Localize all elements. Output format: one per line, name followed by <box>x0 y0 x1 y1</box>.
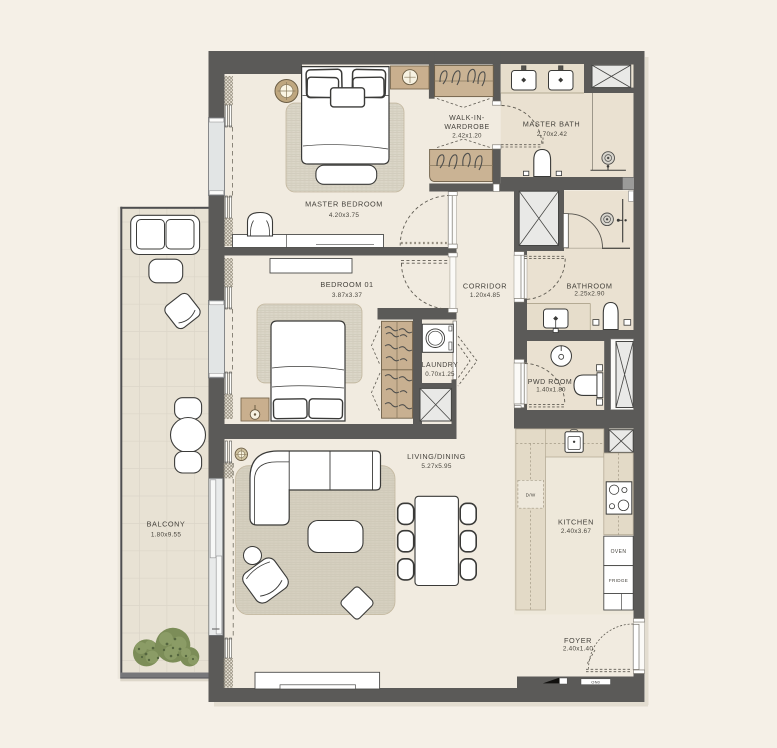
svg-text:1.40x1.80: 1.40x1.80 <box>536 387 566 394</box>
svg-text:MASTER BATH: MASTER BATH <box>523 120 580 129</box>
svg-text:WARDROBE: WARDROBE <box>444 124 489 131</box>
svg-text:D/W: D/W <box>526 493 536 498</box>
svg-text:2.40x1.40: 2.40x1.40 <box>563 646 594 653</box>
svg-text:WALK-IN-: WALK-IN- <box>449 115 485 122</box>
svg-text:BALCONY: BALCONY <box>147 520 186 529</box>
svg-text:BEDROOM 01: BEDROOM 01 <box>320 280 373 289</box>
svg-text:2.25x2.90: 2.25x2.90 <box>574 291 605 298</box>
svg-text:2.70x2.42: 2.70x2.42 <box>537 131 568 138</box>
svg-text:1.20x4.85: 1.20x4.85 <box>470 292 501 299</box>
svg-text:2.42x1.20: 2.42x1.20 <box>452 133 482 140</box>
svg-text:0.70x1.25: 0.70x1.25 <box>425 371 455 378</box>
svg-text:4.20x3.75: 4.20x3.75 <box>329 212 360 219</box>
svg-text:CORRIDOR: CORRIDOR <box>463 282 507 291</box>
svg-text:KITCHEN: KITCHEN <box>558 518 594 527</box>
svg-text:BATHROOM: BATHROOM <box>566 282 612 291</box>
svg-text:FOYER: FOYER <box>564 636 592 645</box>
svg-text:ON0: ON0 <box>591 679 600 684</box>
svg-text:LIVING/DINING: LIVING/DINING <box>407 452 466 461</box>
svg-text:3.87x3.37: 3.87x3.37 <box>332 292 363 299</box>
svg-text:FRIDGE: FRIDGE <box>609 578 628 583</box>
svg-text:1.80x9.55: 1.80x9.55 <box>151 532 182 539</box>
svg-text:OVEN: OVEN <box>611 549 627 555</box>
svg-text:MASTER BEDROOM: MASTER BEDROOM <box>305 200 383 209</box>
svg-text:LAUNDRY: LAUNDRY <box>422 362 459 369</box>
svg-text:PWD ROOM: PWD ROOM <box>528 379 572 386</box>
svg-text:5.27x5.95: 5.27x5.95 <box>421 463 452 470</box>
svg-text:2.40x3.67: 2.40x3.67 <box>561 528 592 535</box>
